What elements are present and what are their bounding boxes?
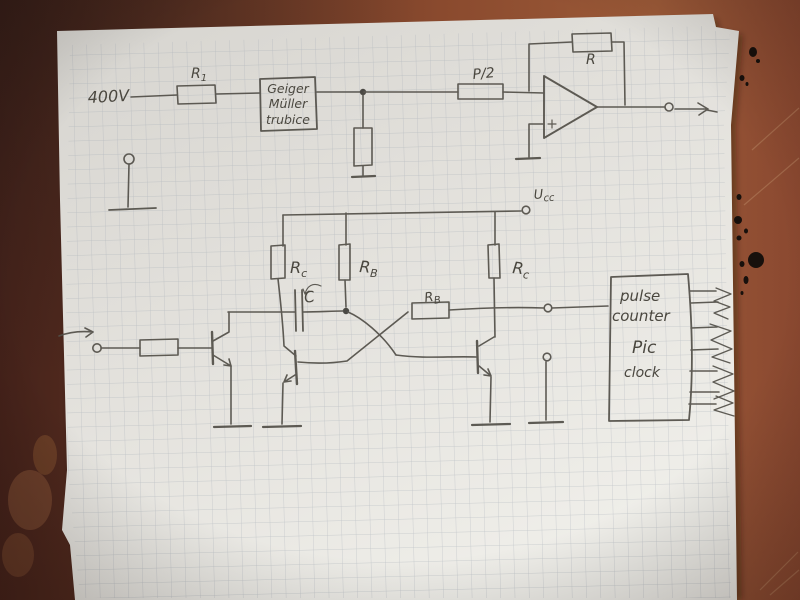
vignette-overlay bbox=[0, 0, 800, 600]
photo-canvas: 400V R1 Geiger Müller trubice P/2 R Ucc … bbox=[0, 0, 800, 600]
photo-of-circuit-sketch: 400V R1 Geiger Müller trubice P/2 R Ucc … bbox=[0, 0, 800, 600]
